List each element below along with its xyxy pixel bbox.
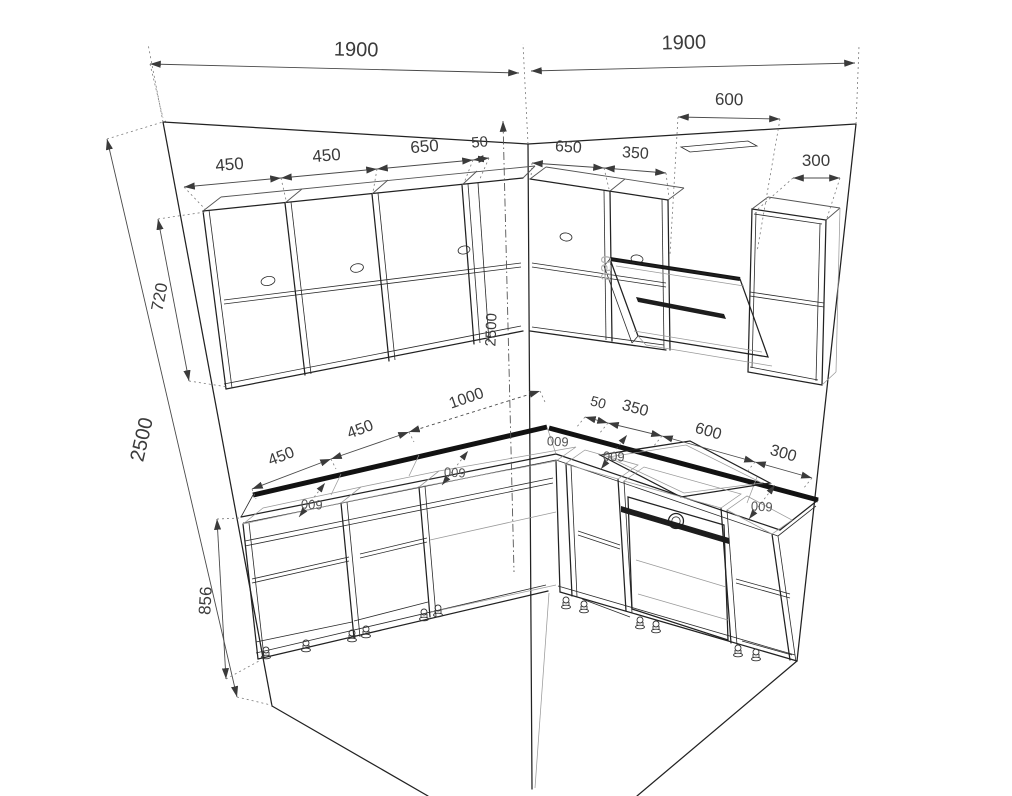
dim-label: 50: [589, 392, 608, 412]
dim-label: 650: [554, 138, 582, 157]
dim-label: 450: [266, 444, 297, 469]
dim-label: 450: [312, 145, 342, 166]
dim-label: 1900: [661, 31, 706, 54]
dim-label: 650: [410, 136, 440, 157]
depth-label: 600: [444, 464, 466, 480]
dim-hood-clearance: 950: [597, 255, 614, 280]
dim-room-height: 2500: [107, 121, 275, 706]
drawing-canvas: 1900 1900 600 2500 720: [0, 0, 1012, 796]
dimensions: 1900 1900 600 2500 720: [107, 31, 855, 706]
dim-label: 600: [715, 90, 744, 109]
dim-label: 856: [195, 586, 215, 615]
dim-label: 1000: [447, 385, 486, 413]
base-cabinets-left: [243, 447, 576, 659]
ceiling-pelmet: [681, 141, 757, 152]
dim-label: 350: [620, 397, 650, 420]
tall-cabinet-300: [748, 197, 840, 385]
dim-hood-width: 600: [670, 90, 780, 255]
dim-label: 2500: [126, 415, 157, 463]
depth-label: 600: [547, 433, 569, 449]
dim-upper-right-widths: 650 350 300: [531, 138, 840, 218]
dim-label: 600: [693, 420, 723, 444]
dim-label: 450: [215, 154, 245, 175]
base-cabinets-right: [558, 450, 797, 662]
depth-label: 600: [603, 448, 625, 464]
dim-wall-left-width: 1900: [150, 38, 519, 118]
dim-label: 350: [621, 144, 649, 163]
upper-cabinets-left: [203, 166, 535, 389]
cable-hole: [260, 275, 276, 287]
dim-label: 50: [471, 133, 489, 151]
dim-label: 300: [768, 442, 798, 466]
dim-label: 720: [148, 281, 172, 312]
dim-label: 2500: [482, 313, 500, 347]
cable-hole: [457, 245, 470, 255]
dim-counter-depth-labels: 600 600 600 600 600: [299, 433, 775, 519]
cable-hole: [350, 263, 364, 274]
hood-handle: [636, 297, 726, 319]
dim-corner-height: 2500: [482, 121, 514, 572]
dim-upper-height: 720: [148, 212, 228, 387]
dim-counter-left-widths: 450 450 1000: [252, 385, 545, 499]
oven-handle: [621, 506, 729, 544]
dim-counter-right-widths: 50 350 600 300: [576, 392, 812, 489]
dim-label: 1900: [334, 38, 379, 61]
depth-label: 600: [751, 498, 773, 514]
backsplash-right: [549, 428, 818, 500]
dim-label: 450: [345, 417, 376, 442]
dim-label: 300: [802, 151, 830, 170]
cable-hole: [560, 232, 573, 242]
range-hood: [604, 259, 772, 366]
kitchen-drawing: 1900 1900 600 2500 720: [0, 0, 1012, 796]
dim-wall-right-width: 1900: [531, 31, 855, 71]
depth-label: 600: [301, 496, 323, 512]
